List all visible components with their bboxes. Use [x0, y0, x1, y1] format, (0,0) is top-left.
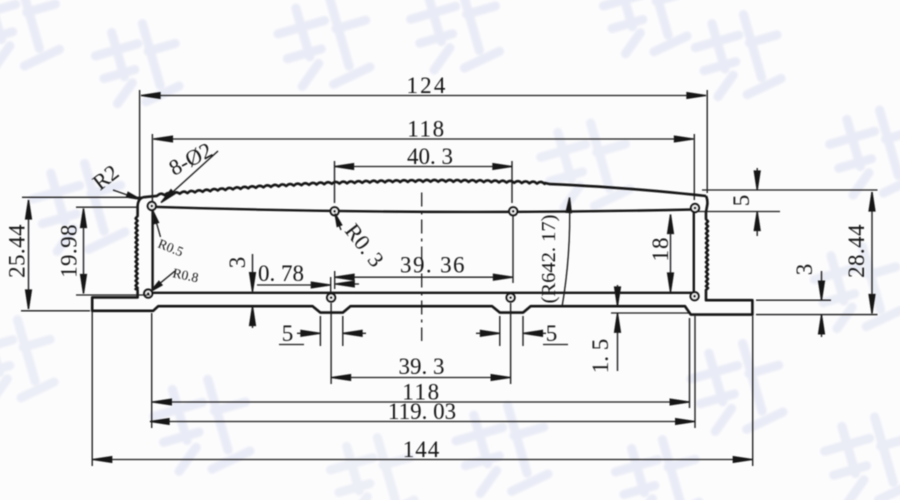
svg-text:39. 3: 39. 3 — [399, 354, 445, 379]
svg-text:R0.5: R0.5 — [156, 236, 186, 260]
svg-text:19.98: 19.98 — [57, 224, 82, 278]
svg-text:(R642. 17): (R642. 17) — [538, 215, 560, 304]
svg-text:3: 3 — [225, 256, 250, 269]
svg-text:18: 18 — [648, 237, 673, 262]
svg-text:39. 36: 39. 36 — [400, 253, 466, 278]
svg-text:0. 78: 0. 78 — [258, 261, 304, 286]
svg-text:40. 3: 40. 3 — [407, 144, 453, 169]
svg-text:8-Ø2: 8-Ø2 — [165, 137, 217, 180]
svg-text:R0. 3: R0. 3 — [340, 219, 389, 272]
svg-text:144: 144 — [403, 437, 441, 462]
svg-text:25.44: 25.44 — [5, 224, 30, 278]
svg-text:28.44: 28.44 — [844, 224, 869, 278]
svg-text:118: 118 — [407, 117, 445, 142]
svg-text:5: 5 — [729, 194, 754, 207]
svg-text:1. 5: 1. 5 — [588, 339, 613, 374]
svg-text:5: 5 — [282, 321, 295, 346]
svg-text:5: 5 — [546, 321, 559, 346]
svg-text:124: 124 — [406, 73, 447, 98]
svg-text:R0.8: R0.8 — [171, 265, 200, 285]
svg-text:119. 03: 119. 03 — [388, 399, 456, 424]
svg-text:3: 3 — [792, 263, 817, 276]
